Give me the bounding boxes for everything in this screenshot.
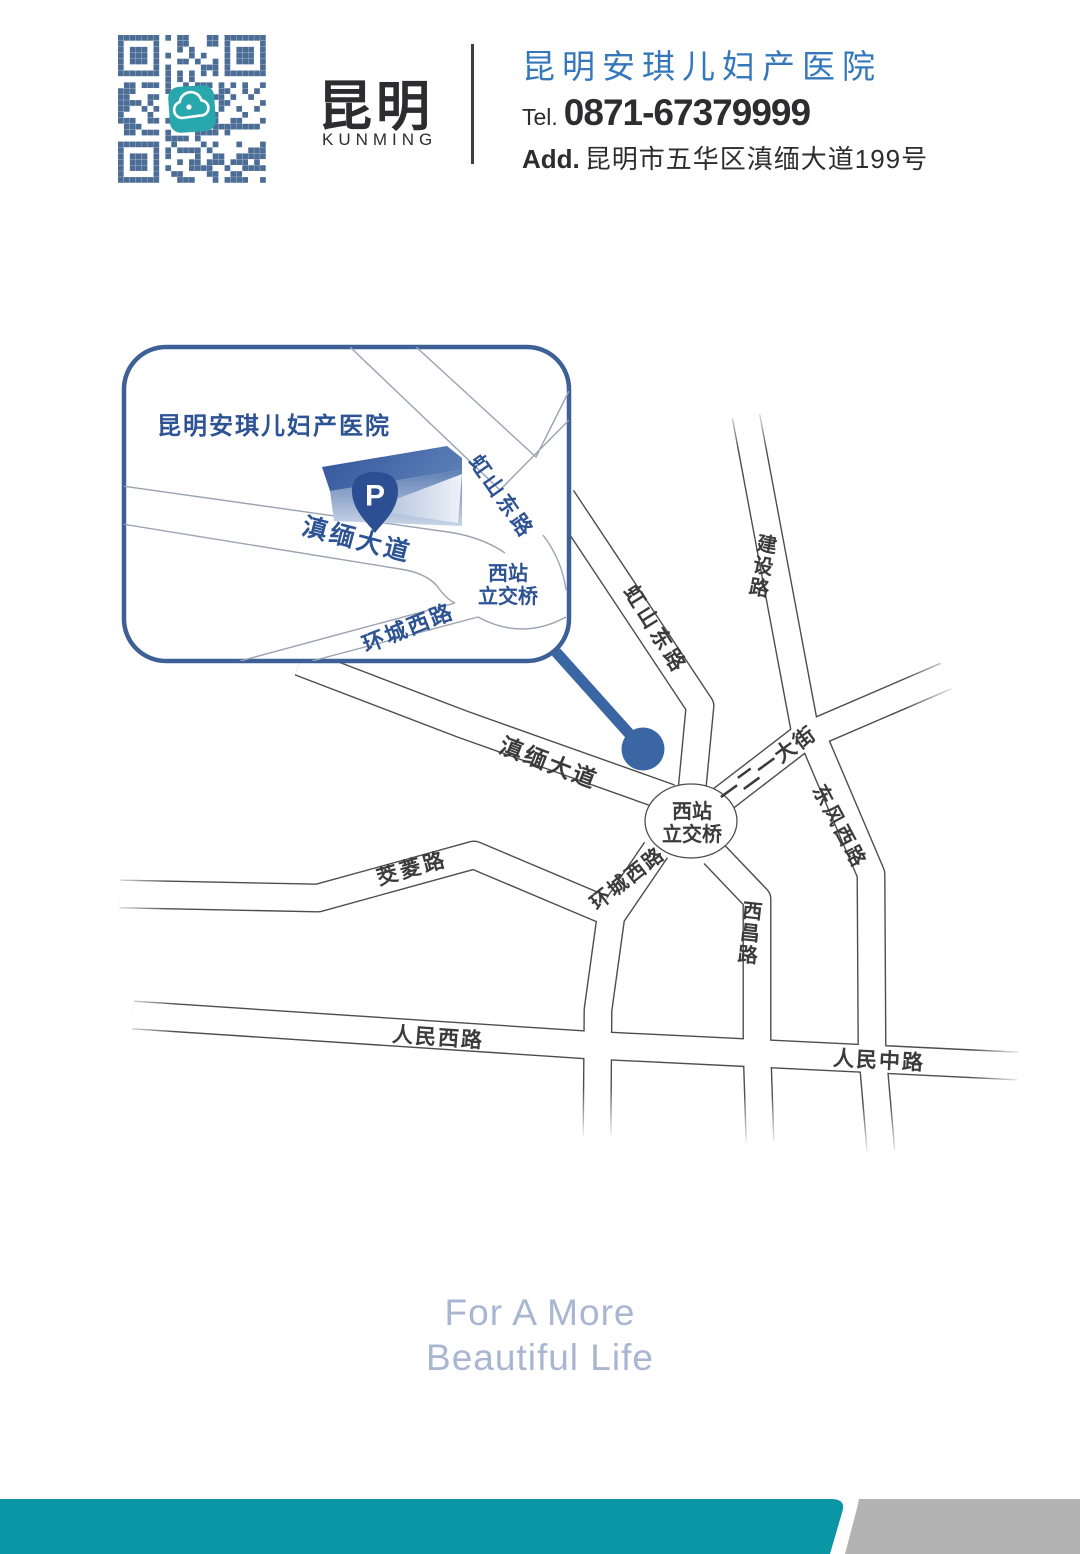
fade-xichang-bottom [730,1093,790,1147]
road-dianmian-surface [300,662,670,798]
fade-jiaoling-left [106,870,168,920]
svg-text:立交桥: 立交桥 [478,584,539,608]
fade-dongfeng-bottom [850,1103,914,1157]
fade-renmin-right [970,1040,1025,1090]
inset-title: 昆明安琪儿妇产医院 [157,412,391,440]
gray-footer-bar [845,1499,1080,1554]
fade-huancheng-bottom [570,1088,628,1140]
fade-yieryi-right [903,646,961,708]
svg-text:一二一大街: 一二一大街 [714,721,821,808]
slogan-line2: Beautiful Life [0,1335,1080,1380]
parking-pin-letter: P [365,480,385,513]
fade-jianshe-top [720,406,782,450]
road-label-yieryi: 一二一大街 [714,721,821,808]
inset-map: P 昆明安琪儿妇产医院 滇缅大道 虹山东路 环城西路 西站 立交桥 [122,345,569,661]
hospital-location-dot [622,728,665,771]
slogan: For A More Beautiful Life [0,1290,1080,1380]
fade-renmin-left [118,993,176,1043]
svg-text:人民中路: 人民中路 [832,1046,925,1075]
page: 昆明 KUNMING 昆明安琪儿妇产医院 Tel. 0871-67379999 … [0,0,1080,1554]
road-label-renmin-middle: 人民中路 [832,1046,925,1075]
interchange-label-line2: 立交桥 [662,822,723,846]
teal-footer-bar [0,1499,843,1554]
svg-text:西站: 西站 [488,561,528,585]
interchange-label-line1: 西站 [672,799,712,823]
slogan-line1: For A More [0,1290,1080,1335]
